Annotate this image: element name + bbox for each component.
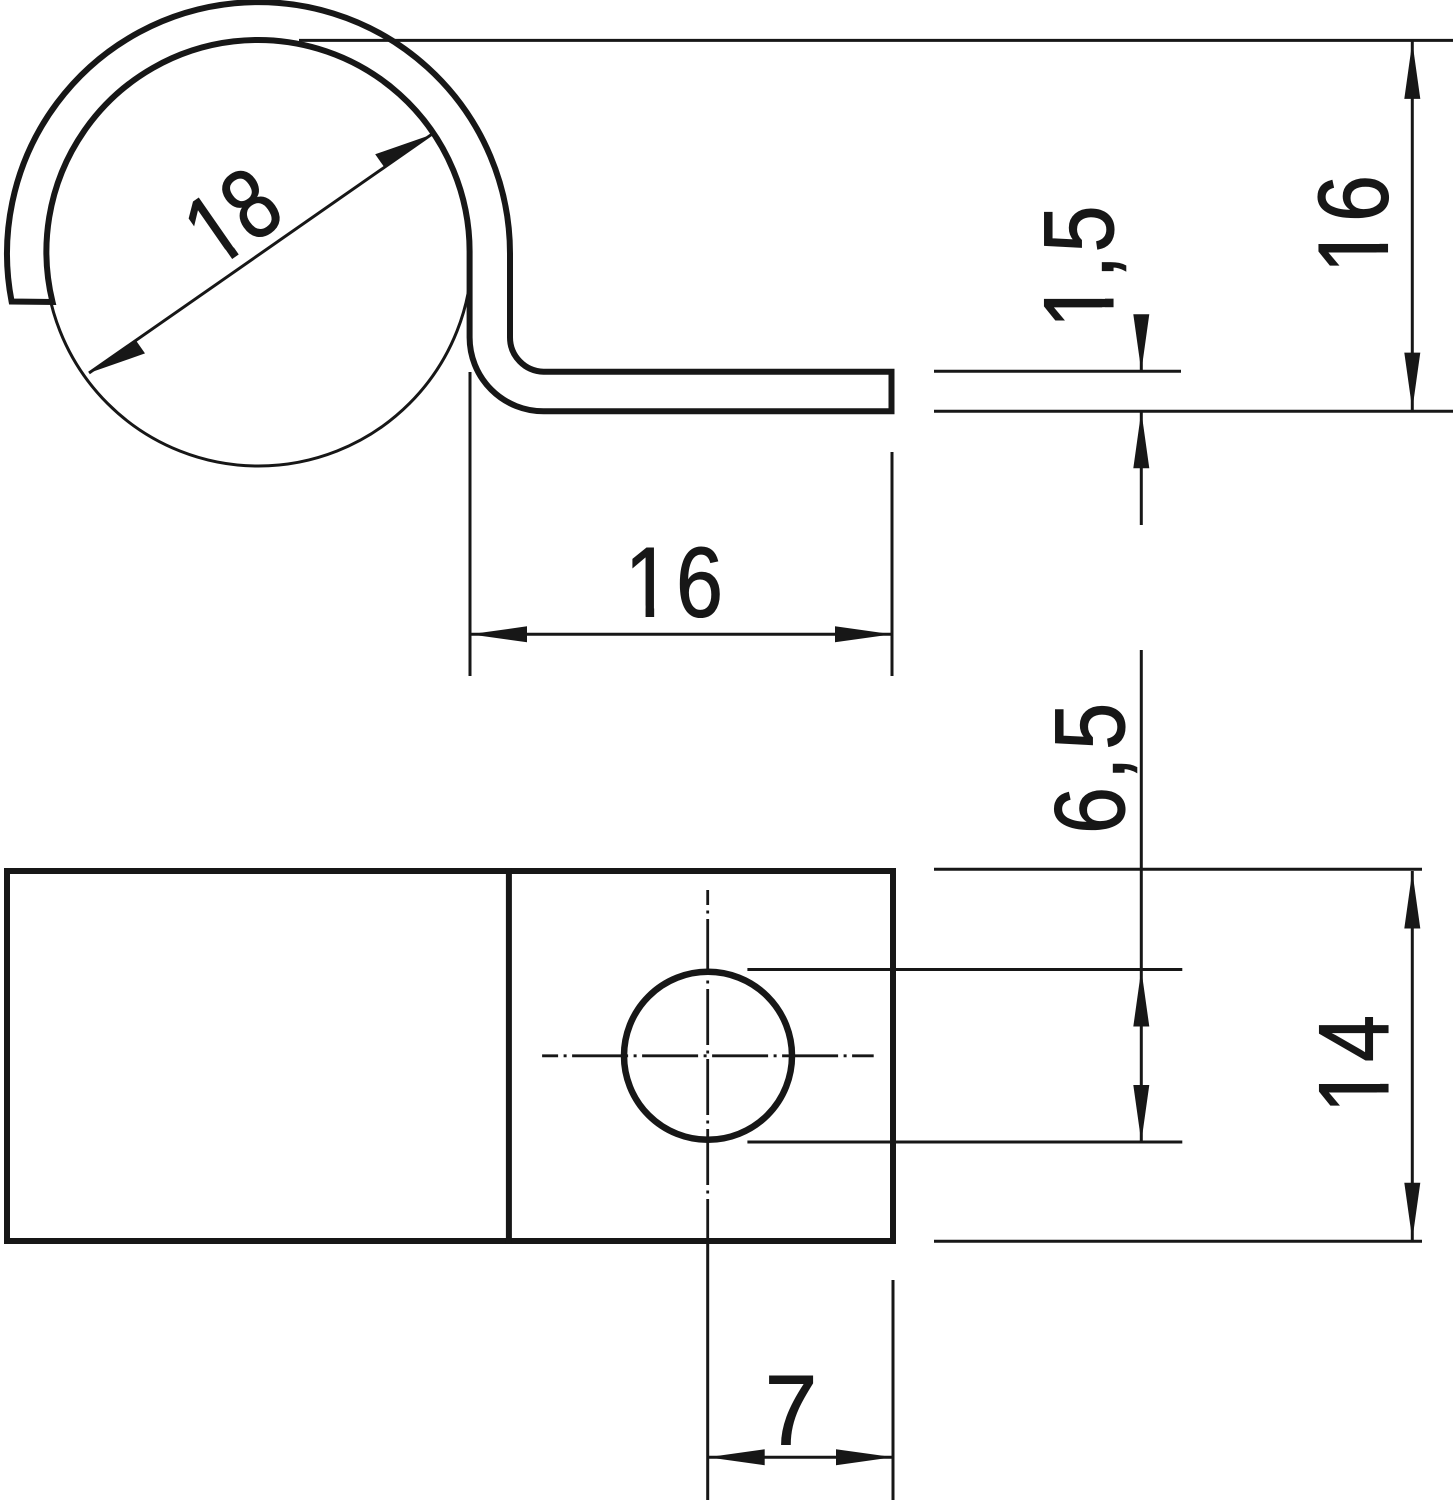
svg-text:14: 14 bbox=[1297, 1011, 1409, 1114]
svg-text:6,5: 6,5 bbox=[1033, 696, 1145, 834]
svg-text:16: 16 bbox=[625, 526, 728, 638]
svg-text:1,5: 1,5 bbox=[1023, 203, 1135, 328]
svg-text:7: 7 bbox=[765, 1354, 818, 1466]
svg-text:16: 16 bbox=[1297, 171, 1409, 274]
